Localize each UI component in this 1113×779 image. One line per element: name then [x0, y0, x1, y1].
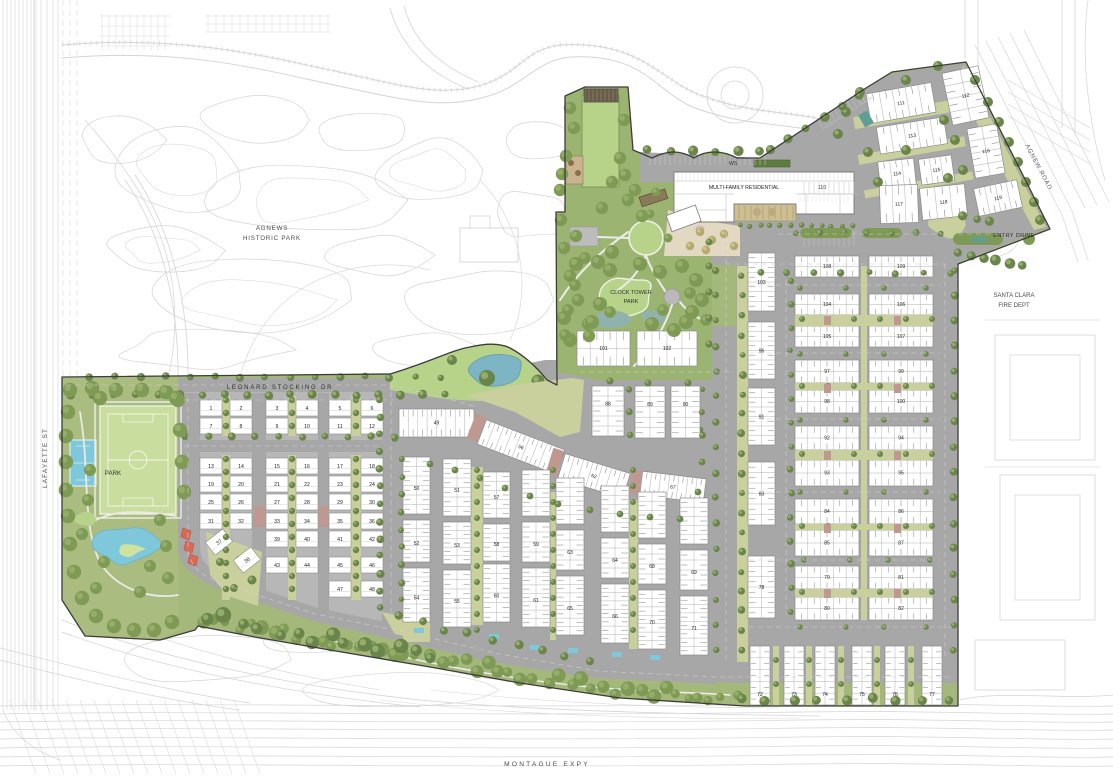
- svg-text:65: 65: [567, 606, 573, 612]
- svg-text:58: 58: [494, 542, 500, 548]
- svg-text:63: 63: [567, 550, 573, 556]
- svg-text:23: 23: [337, 482, 343, 488]
- svg-text:PARK: PARK: [624, 299, 639, 305]
- svg-text:71: 71: [691, 626, 697, 632]
- svg-text:HISTORIC PARK: HISTORIC PARK: [243, 235, 301, 242]
- svg-text:92: 92: [824, 436, 830, 442]
- svg-text:95: 95: [898, 471, 904, 477]
- svg-text:33: 33: [274, 519, 280, 525]
- svg-text:118: 118: [939, 199, 948, 206]
- svg-text:10: 10: [304, 424, 310, 430]
- svg-text:WS: WS: [729, 161, 738, 167]
- svg-text:4: 4: [306, 406, 309, 412]
- svg-text:88: 88: [605, 401, 611, 407]
- svg-text:17: 17: [337, 464, 343, 470]
- svg-text:74: 74: [822, 692, 828, 698]
- svg-text:ENTRY DRIVE: ENTRY DRIVE: [993, 233, 1035, 239]
- svg-text:49: 49: [434, 421, 440, 427]
- svg-text:32: 32: [238, 519, 244, 525]
- svg-text:69: 69: [691, 570, 697, 576]
- svg-text:9: 9: [276, 424, 279, 430]
- svg-text:39: 39: [274, 537, 280, 543]
- svg-text:45: 45: [337, 563, 343, 569]
- svg-text:SANTA CLARA: SANTA CLARA: [994, 293, 1035, 299]
- svg-text:85: 85: [824, 541, 830, 547]
- svg-text:13: 13: [208, 464, 214, 470]
- svg-text:48: 48: [369, 587, 375, 593]
- svg-text:53: 53: [454, 543, 460, 549]
- svg-text:AGNEWS: AGNEWS: [256, 225, 288, 232]
- svg-text:1: 1: [210, 406, 213, 412]
- svg-text:75: 75: [859, 692, 865, 698]
- svg-text:43: 43: [274, 563, 280, 569]
- svg-text:108: 108: [823, 264, 832, 270]
- svg-text:19: 19: [208, 482, 214, 488]
- svg-text:12: 12: [369, 424, 375, 430]
- svg-text:8: 8: [240, 424, 243, 430]
- svg-text:68: 68: [649, 564, 655, 570]
- svg-text:18: 18: [369, 464, 375, 470]
- svg-text:LEONARD STOCKING DR: LEONARD STOCKING DR: [227, 385, 333, 391]
- svg-text:81: 81: [898, 575, 904, 581]
- svg-text:96: 96: [759, 348, 765, 354]
- svg-text:78: 78: [759, 585, 765, 591]
- svg-text:5: 5: [339, 406, 342, 412]
- svg-text:109: 109: [897, 264, 906, 270]
- svg-text:24: 24: [369, 482, 375, 488]
- svg-text:93: 93: [824, 471, 830, 477]
- svg-text:105: 105: [823, 334, 832, 340]
- svg-text:77: 77: [929, 692, 935, 698]
- svg-text:51: 51: [454, 488, 460, 494]
- svg-text:94: 94: [898, 436, 904, 442]
- svg-text:100: 100: [897, 399, 906, 405]
- svg-text:40: 40: [304, 537, 310, 543]
- svg-text:15: 15: [274, 464, 280, 470]
- svg-text:91: 91: [759, 414, 765, 420]
- svg-text:55: 55: [454, 599, 460, 605]
- svg-text:106: 106: [897, 302, 906, 308]
- svg-text:34: 34: [304, 519, 310, 525]
- svg-text:99: 99: [898, 369, 904, 375]
- svg-text:LAFAYETTE ST: LAFAYETTE ST: [42, 428, 49, 488]
- svg-text:70: 70: [649, 620, 655, 626]
- svg-text:87: 87: [898, 541, 904, 547]
- svg-text:3: 3: [276, 406, 279, 412]
- svg-text:50: 50: [414, 486, 420, 492]
- svg-text:26: 26: [238, 500, 244, 506]
- svg-text:86: 86: [898, 509, 904, 515]
- svg-text:22: 22: [304, 482, 310, 488]
- svg-text:PARK: PARK: [105, 470, 122, 477]
- svg-text:52: 52: [414, 541, 420, 547]
- svg-text:82: 82: [898, 606, 904, 612]
- svg-text:104: 104: [823, 302, 832, 308]
- svg-text:11: 11: [337, 424, 342, 430]
- svg-text:31: 31: [208, 519, 214, 525]
- svg-text:60: 60: [494, 594, 500, 600]
- svg-text:21: 21: [274, 482, 280, 488]
- svg-text:28: 28: [304, 500, 310, 506]
- svg-text:20: 20: [238, 482, 244, 488]
- svg-text:84: 84: [824, 509, 830, 515]
- svg-text:107: 107: [897, 334, 906, 340]
- svg-text:41: 41: [337, 537, 343, 543]
- svg-text:44: 44: [304, 563, 310, 569]
- svg-text:64: 64: [612, 558, 618, 564]
- svg-text:30: 30: [369, 500, 375, 506]
- svg-text:89: 89: [647, 402, 653, 408]
- svg-text:6: 6: [371, 406, 374, 412]
- svg-text:47: 47: [337, 587, 343, 593]
- svg-text:46: 46: [369, 563, 375, 569]
- svg-text:57: 57: [494, 495, 500, 501]
- svg-text:61: 61: [533, 598, 539, 604]
- svg-text:117: 117: [895, 202, 903, 208]
- svg-text:35: 35: [337, 519, 343, 525]
- svg-text:27: 27: [274, 500, 280, 506]
- svg-text:25: 25: [208, 500, 214, 506]
- svg-text:79: 79: [824, 575, 830, 581]
- svg-text:113: 113: [908, 133, 917, 140]
- svg-text:2: 2: [240, 406, 243, 412]
- svg-text:29: 29: [337, 500, 343, 506]
- svg-text:80: 80: [824, 606, 830, 612]
- svg-text:CLOCK TOWER: CLOCK TOWER: [610, 290, 651, 296]
- svg-text:MULTI-FAMILY RESIDENTIAL: MULTI-FAMILY RESIDENTIAL: [709, 185, 779, 191]
- svg-text:7: 7: [210, 424, 213, 430]
- svg-text:97: 97: [824, 369, 830, 375]
- svg-text:14: 14: [238, 464, 244, 470]
- svg-text:67: 67: [670, 484, 676, 491]
- svg-text:102: 102: [663, 346, 672, 352]
- svg-text:16: 16: [304, 464, 310, 470]
- svg-text:101: 101: [599, 346, 608, 352]
- svg-text:59: 59: [533, 542, 539, 548]
- svg-text:114: 114: [893, 171, 902, 178]
- svg-text:90: 90: [683, 402, 689, 408]
- svg-text:MONTAGUE EXPY: MONTAGUE EXPY: [504, 761, 590, 768]
- svg-text:98: 98: [824, 399, 830, 405]
- svg-text:36: 36: [369, 519, 375, 525]
- svg-text:66: 66: [612, 614, 618, 620]
- svg-text:54: 54: [414, 595, 420, 601]
- svg-text:42: 42: [369, 537, 375, 543]
- svg-text:115: 115: [932, 167, 941, 174]
- svg-text:FIRE DEPT: FIRE DEPT: [998, 303, 1030, 309]
